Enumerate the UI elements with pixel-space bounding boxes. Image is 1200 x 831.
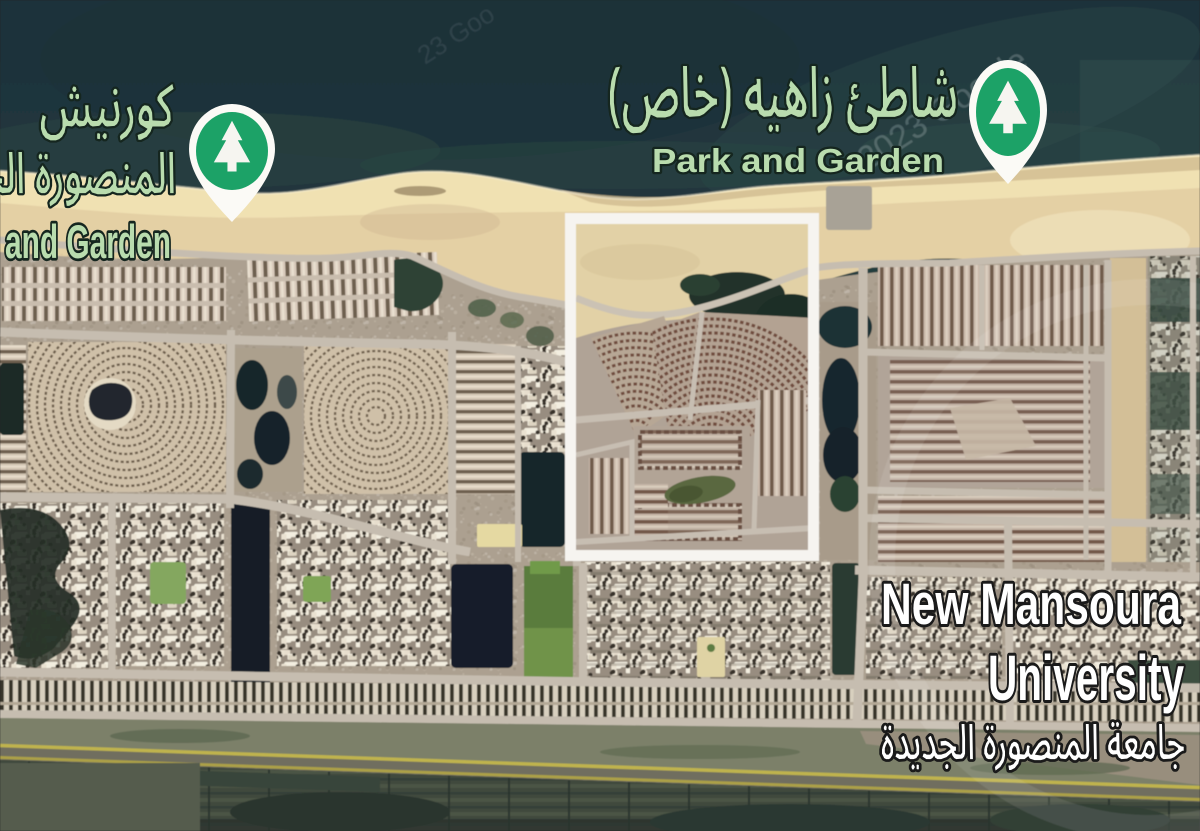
svg-text:and Garden: and Garden (5, 215, 171, 268)
svg-text:University: University (988, 642, 1184, 714)
svg-text:New Mansoura: New Mansoura (881, 572, 1182, 637)
svg-text:Park and Garden: Park and Garden (652, 142, 944, 179)
